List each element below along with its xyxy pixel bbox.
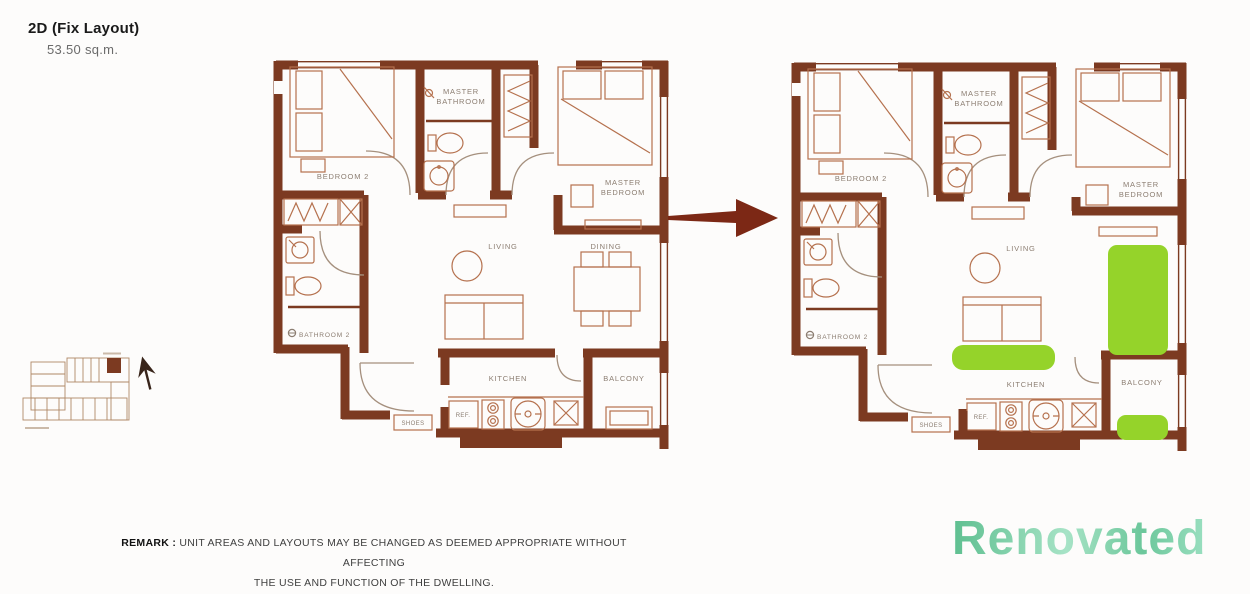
floor-plan-sheet: 2D (Fix Layout) 53.50 sq.m.	[0, 0, 1250, 594]
room-label-balcony: BALCONY	[603, 374, 644, 383]
room-label-living: LIVING	[488, 242, 517, 251]
room-label-bedroom2: BEDROOM 2	[317, 172, 369, 181]
room-label-master-bedroom-2: BEDROOM	[601, 188, 645, 197]
renovated-watermark: Renovated	[948, 502, 1248, 574]
room-label-balcony: BALCONY	[1121, 378, 1162, 387]
building-key-plan	[15, 350, 165, 440]
transition-arrow-icon	[668, 192, 780, 244]
highlight-balcony-unit	[1117, 415, 1168, 440]
room-label-master-bathroom: MASTER	[443, 87, 479, 96]
room-label-master-bathroom-2: BATHROOM	[436, 97, 485, 106]
remark-label: REMARK :	[121, 537, 176, 549]
room-label-kitchen: KITCHEN	[489, 374, 528, 383]
remark-note: REMARK : UNIT AREAS AND LAYOUTS MAY BE C…	[93, 533, 655, 593]
unit-area: 53.50 sq.m.	[47, 42, 118, 57]
original-room-labels: BEDROOM 2 MASTER BATHROOM MASTER BEDROOM…	[299, 87, 645, 427]
label-ref: REF.	[974, 415, 989, 421]
highlight-daybed	[1108, 245, 1168, 355]
room-label-living: LIVING	[1006, 244, 1035, 253]
renovated-text: Renovated	[952, 512, 1206, 565]
renovation-highlights	[952, 245, 1168, 440]
label-ref: REF.	[456, 413, 471, 419]
room-label-bedroom2: BEDROOM 2	[835, 174, 887, 183]
room-label-kitchen: KITCHEN	[1007, 380, 1046, 389]
room-label-master-bedroom-2: BEDROOM	[1119, 190, 1163, 199]
remark-line2: THE USE AND FUNCTION OF THE DWELLING.	[254, 577, 494, 589]
page-title: 2D (Fix Layout)	[28, 20, 139, 37]
label-shoes: SHOES	[401, 421, 424, 427]
highlight-tv-cabinet	[952, 345, 1055, 370]
room-label-master-bedroom: MASTER	[1123, 180, 1159, 189]
room-label-dining: DINING	[590, 242, 621, 251]
room-label-master-bathroom-2: BATHROOM	[954, 99, 1003, 108]
north-arrow-icon	[133, 354, 159, 391]
label-shoes: SHOES	[919, 423, 942, 429]
room-label-master-bedroom: MASTER	[605, 178, 641, 187]
room-label-bathroom2: BATHROOM 2	[817, 334, 868, 341]
ac-unit	[606, 407, 652, 429]
floor-plan-renovated: BEDROOM 2 MASTER BATHROOM MASTER BEDROOM…	[786, 55, 1206, 467]
key-plan-unit-highlight	[107, 358, 121, 373]
dining-set	[574, 252, 640, 326]
original-extras	[438, 185, 664, 429]
room-label-bathroom2: BATHROOM 2	[299, 332, 350, 339]
remark-line1: UNIT AREAS AND LAYOUTS MAY BE CHANGED AS…	[179, 537, 626, 569]
floor-plan-original: BEDROOM 2 MASTER BATHROOM MASTER BEDROOM…	[268, 53, 688, 465]
room-label-master-bathroom: MASTER	[961, 89, 997, 98]
